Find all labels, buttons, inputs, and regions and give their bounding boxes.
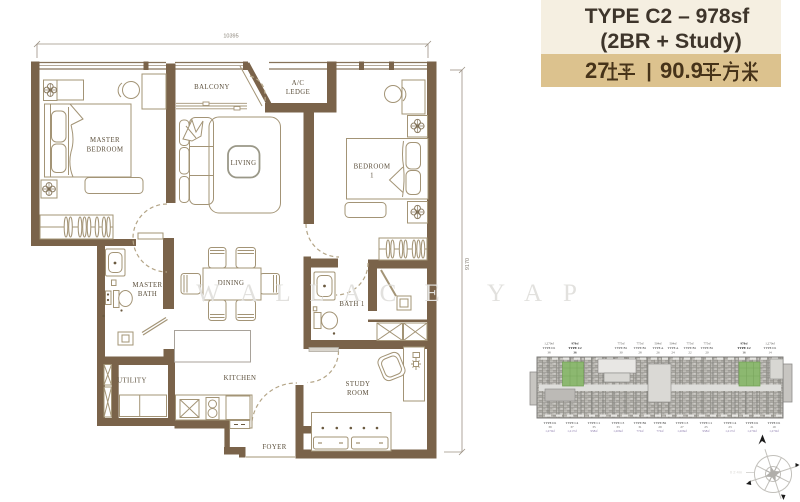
svg-text:90.9: 90.9 (660, 58, 703, 83)
svg-text:10395: 10395 (223, 34, 238, 40)
svg-text:TYPE C2 – 978sf: TYPE C2 – 978sf (585, 5, 751, 28)
svg-text:A: A (343, 280, 361, 307)
svg-text:958sf: 958sf (702, 429, 710, 433)
svg-text:TYPE B1: TYPE B1 (684, 346, 697, 350)
svg-text:38: 38 (547, 351, 551, 355)
svg-text:9170: 9170 (465, 258, 471, 270)
svg-text:0 2 4m: 0 2 4m (730, 470, 743, 475)
svg-text:FOYER: FOYER (262, 444, 286, 451)
svg-text:UTILITY: UTILITY (117, 378, 147, 385)
svg-text:LEDGE: LEDGE (286, 89, 310, 96)
svg-text:775sf: 775sf (617, 342, 625, 346)
svg-text:26: 26 (656, 351, 660, 355)
svg-text:TYPE D1: TYPE D1 (764, 346, 777, 350)
svg-text:22: 22 (688, 351, 692, 355)
svg-text:C: C (380, 280, 397, 307)
svg-text:16: 16 (742, 351, 746, 355)
svg-text:LIVING: LIVING (231, 160, 257, 167)
svg-text:978sf: 978sf (571, 342, 579, 346)
svg-text:775sf: 775sf (686, 342, 694, 346)
svg-text:P: P (563, 280, 577, 307)
svg-text:TYPE C2: TYPE C2 (737, 346, 751, 350)
svg-text:BEDROOM: BEDROOM (354, 164, 391, 171)
svg-text:MASTER: MASTER (133, 282, 163, 289)
svg-text:TYPE B1: TYPE B1 (701, 346, 714, 350)
svg-text:MASTER: MASTER (90, 137, 120, 144)
svg-text:504sf: 504sf (669, 342, 677, 346)
svg-text:28: 28 (638, 351, 642, 355)
svg-text:24: 24 (671, 351, 675, 355)
svg-text:TYPE A: TYPE A (668, 346, 680, 350)
svg-text:BALCONY: BALCONY (194, 84, 230, 91)
svg-text:ROOM: ROOM (347, 390, 369, 397)
svg-text:1: 1 (370, 173, 374, 180)
svg-text:KITCHEN: KITCHEN (224, 375, 257, 382)
svg-text:772sf: 772sf (636, 429, 644, 433)
svg-text:W: W (196, 280, 220, 307)
svg-text:BEDROOM: BEDROOM (87, 147, 124, 154)
svg-text:|: | (646, 61, 651, 82)
svg-text:14: 14 (768, 351, 772, 355)
svg-text:772sf: 772sf (656, 429, 664, 433)
svg-text:E: E (424, 280, 439, 307)
svg-text:27: 27 (585, 58, 609, 83)
svg-text:TYPE D1: TYPE D1 (543, 346, 556, 350)
svg-text:BATH: BATH (138, 291, 157, 298)
svg-text:TYPE B1: TYPE B1 (615, 346, 628, 350)
svg-text:978sf: 978sf (740, 342, 748, 346)
svg-text:(2BR + Study): (2BR + Study) (600, 29, 742, 53)
svg-text:504sf: 504sf (654, 342, 662, 346)
svg-text:775sf: 775sf (636, 342, 644, 346)
svg-text:A/C: A/C (292, 80, 305, 87)
svg-text:TYPE A: TYPE A (653, 346, 665, 350)
svg-text:20: 20 (705, 351, 709, 355)
svg-text:TYPE C2: TYPE C2 (568, 346, 582, 350)
svg-text:775sf: 775sf (703, 342, 711, 346)
svg-text:L: L (309, 280, 324, 307)
svg-text:STUDY: STUDY (346, 381, 371, 388)
svg-text:Y: Y (487, 280, 505, 307)
svg-text:TYPE B1: TYPE B1 (634, 346, 647, 350)
svg-text:A: A (524, 280, 542, 307)
svg-text:A: A (240, 280, 258, 307)
svg-text:30: 30 (619, 351, 623, 355)
svg-text:36: 36 (573, 351, 577, 355)
svg-text:L: L (275, 280, 290, 307)
svg-text:958sf: 958sf (590, 429, 598, 433)
